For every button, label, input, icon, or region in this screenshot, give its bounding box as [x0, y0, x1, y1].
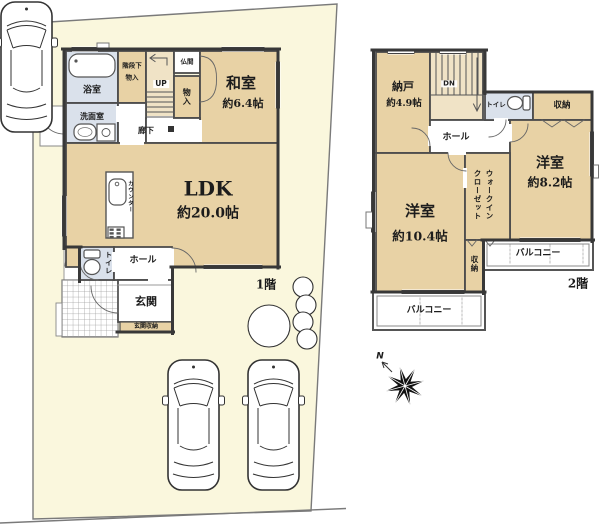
label-counter: カウンター [126, 181, 132, 214]
toilet-tank-1f [84, 250, 100, 258]
label-bedroom2-size: 約10.4帖 [392, 229, 447, 242]
kitchen-sink [109, 179, 126, 205]
label-under-stair-storage-2: 物入 [126, 75, 139, 82]
label-balcony-bottom: バルコニー [407, 306, 452, 315]
label-under-stair-storage-1: 階段下 [122, 63, 142, 70]
car-top-view-icon [0, 2, 58, 132]
label-hall-1f: ホール [129, 256, 156, 265]
label-closet-1f: 物入 [183, 88, 191, 106]
label-toilet-2f: トイレ [486, 102, 506, 109]
label-butsuma: 仏間 [181, 59, 194, 66]
label-washitsu-size: 約6.4帖 [222, 98, 263, 110]
label-floor2: 2階 [568, 278, 588, 291]
label-ldk: LDK [184, 179, 233, 200]
label-storage-top: 収納 [553, 102, 570, 111]
label-stairs-down: DN [441, 80, 457, 87]
label-bathroom: 浴室 [83, 86, 101, 95]
label-wic-line2: クローゼット [473, 170, 481, 221]
label-bedroom2: 洋室 [405, 204, 435, 220]
room-bedroom2 [376, 153, 465, 292]
shutter-box-east [594, 165, 599, 178]
toilet-tank-2f [523, 96, 530, 110]
toilet-bowl-1f [84, 260, 100, 275]
label-bedroom1-size: 約8.2帖 [528, 177, 573, 190]
pillar [168, 126, 174, 132]
label-balcony-right: バルコニー [516, 249, 561, 258]
washbasin [74, 124, 96, 140]
toilet-bowl-2f [508, 97, 523, 110]
label-toilet-1f: トイレ [105, 251, 112, 275]
label-entrance-storage: 玄関収納 [134, 324, 158, 330]
compass-rose-icon [382, 362, 429, 409]
label-stairs-up: UP [153, 80, 169, 88]
label-washitsu: 和室 [226, 76, 256, 92]
label-hallway: 廊下 [138, 126, 154, 134]
entrance-porch [56, 280, 118, 337]
floor-plan-page: 浴室 洗面室 階段下 物入 UP 仏間 物入 和室 約6.4帖 廊下 LDK 約… [0, 0, 600, 527]
label-wic-line1: ウォークイン [485, 170, 493, 221]
label-compass-north: N [376, 352, 384, 361]
label-storeroom-size: 約4.9帖 [386, 99, 422, 109]
label-entrance: 玄関 [135, 296, 157, 308]
label-storeroom: 納戸 [392, 81, 414, 93]
label-hall-2f: ホール [442, 133, 469, 142]
bathtub [69, 54, 115, 77]
label-bedroom1: 洋室 [536, 157, 564, 172]
label-ldk-size: 約20.0帖 [177, 207, 239, 222]
room-hallway-a [118, 103, 146, 143]
label-storage-side: 収納 [470, 256, 478, 273]
label-floor1: 1階 [256, 279, 276, 292]
north-arrow [382, 362, 392, 372]
floor-plan-drawing [0, 0, 600, 527]
label-washroom: 洗面室 [80, 112, 104, 120]
